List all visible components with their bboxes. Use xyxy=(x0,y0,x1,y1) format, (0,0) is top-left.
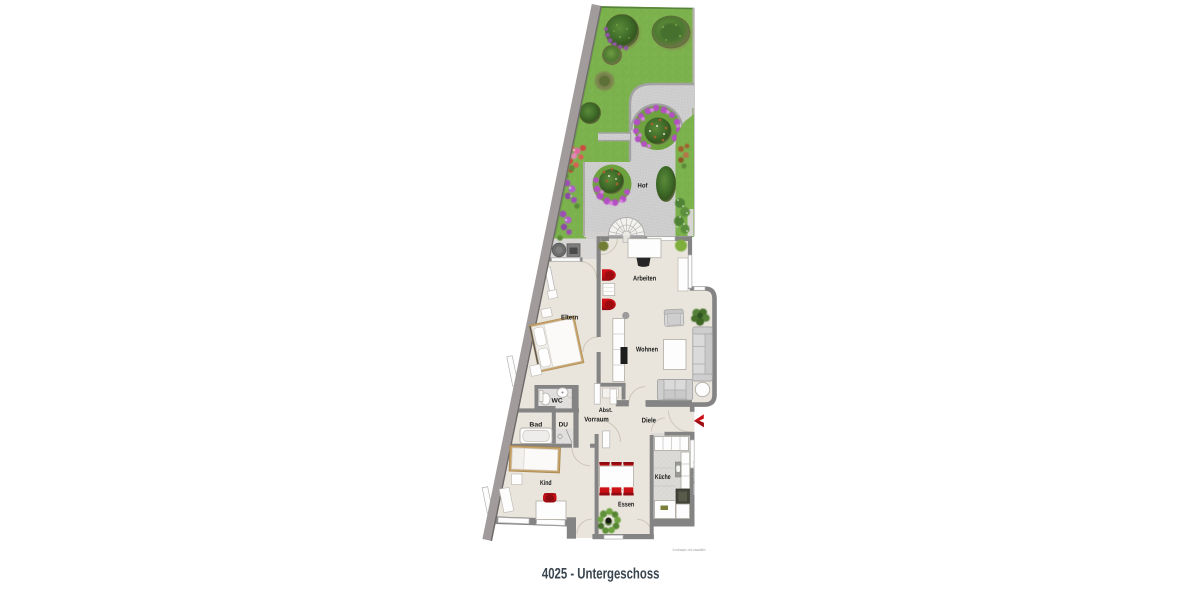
svg-text:DU: DU xyxy=(559,422,569,429)
svg-text:Arbeiten: Arbeiten xyxy=(633,275,656,283)
svg-text:Bad: Bad xyxy=(529,422,542,429)
svg-text:4025 - Untergeschoss: 4025 - Untergeschoss xyxy=(542,565,660,582)
svg-text:Kind: Kind xyxy=(540,479,552,487)
svg-text:plan elements gmbh - floorplan: plan elements gmbh - floorplanner xyxy=(692,461,696,495)
svg-text:Abst.: Abst. xyxy=(599,407,613,414)
svg-text:Grundrissplan, nicht massstäbl: Grundrissplan, nicht massstäblich xyxy=(673,548,706,552)
svg-text:Diele: Diele xyxy=(642,417,656,425)
svg-text:Wohnen: Wohnen xyxy=(636,346,658,354)
svg-text:Essen: Essen xyxy=(618,502,634,509)
svg-text:Hof: Hof xyxy=(638,183,649,190)
svg-text:WC: WC xyxy=(552,397,564,404)
svg-text:Eltern: Eltern xyxy=(561,314,578,322)
svg-text:Vorraum: Vorraum xyxy=(584,417,609,424)
svg-text:Küche: Küche xyxy=(655,473,671,481)
